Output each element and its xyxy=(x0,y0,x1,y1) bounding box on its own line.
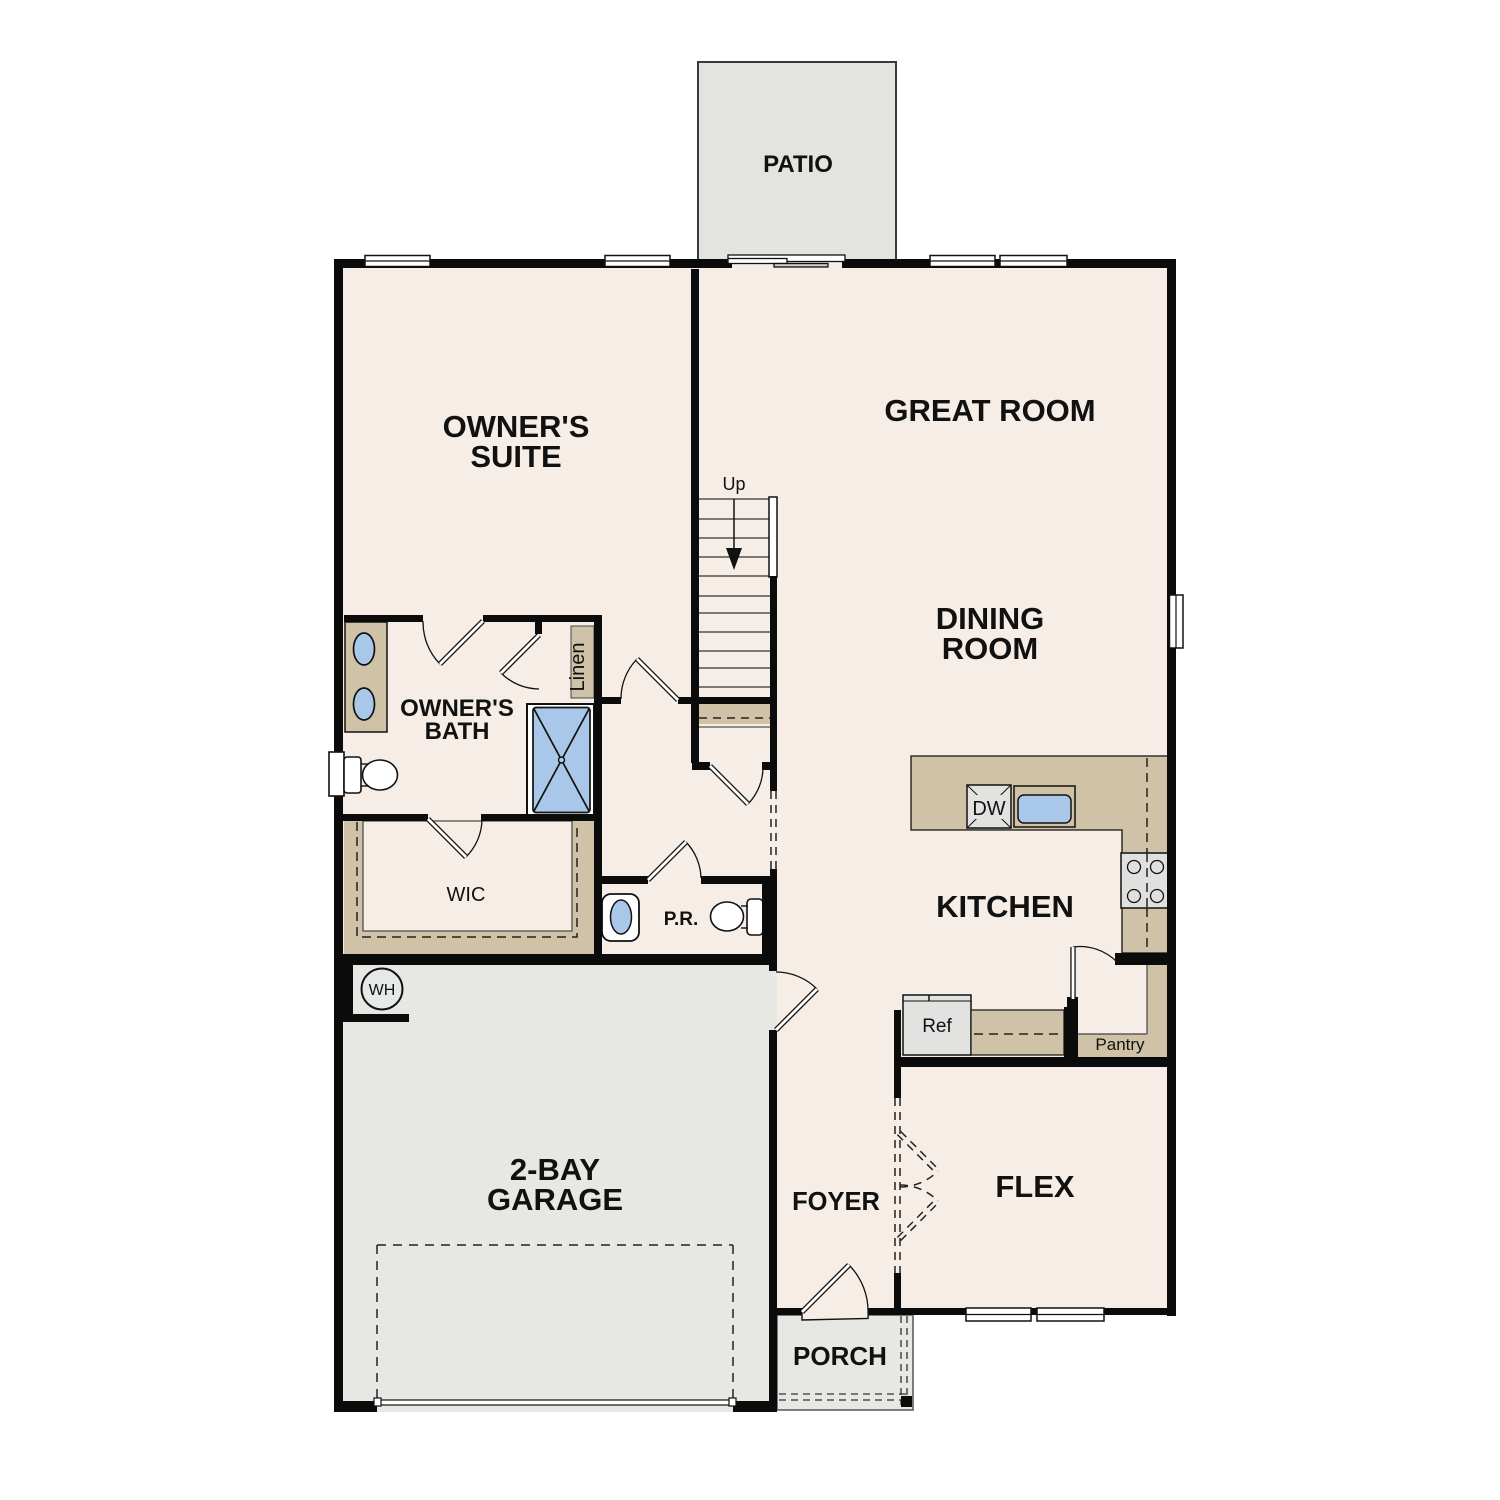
svg-text:WH: WH xyxy=(369,982,396,999)
svg-text:GARAGE: GARAGE xyxy=(487,1182,623,1217)
svg-text:FOYER: FOYER xyxy=(792,1188,880,1216)
svg-text:PATIO: PATIO xyxy=(763,151,833,178)
svg-text:WIC: WIC xyxy=(447,884,486,906)
svg-text:KITCHEN: KITCHEN xyxy=(936,889,1074,924)
svg-text:Pantry: Pantry xyxy=(1095,1035,1145,1054)
svg-text:ROOM: ROOM xyxy=(942,631,1038,666)
svg-text:Linen: Linen xyxy=(567,643,589,692)
svg-text:PORCH: PORCH xyxy=(793,1341,887,1371)
svg-text:Up: Up xyxy=(722,474,745,494)
svg-text:SUITE: SUITE xyxy=(470,439,561,474)
svg-text:GREAT ROOM: GREAT ROOM xyxy=(884,393,1095,428)
svg-text:P.R.: P.R. xyxy=(664,909,699,930)
svg-text:DW: DW xyxy=(972,798,1005,820)
svg-text:Ref: Ref xyxy=(922,1016,952,1037)
svg-text:FLEX: FLEX xyxy=(995,1169,1075,1204)
svg-text:BATH: BATH xyxy=(425,718,490,745)
